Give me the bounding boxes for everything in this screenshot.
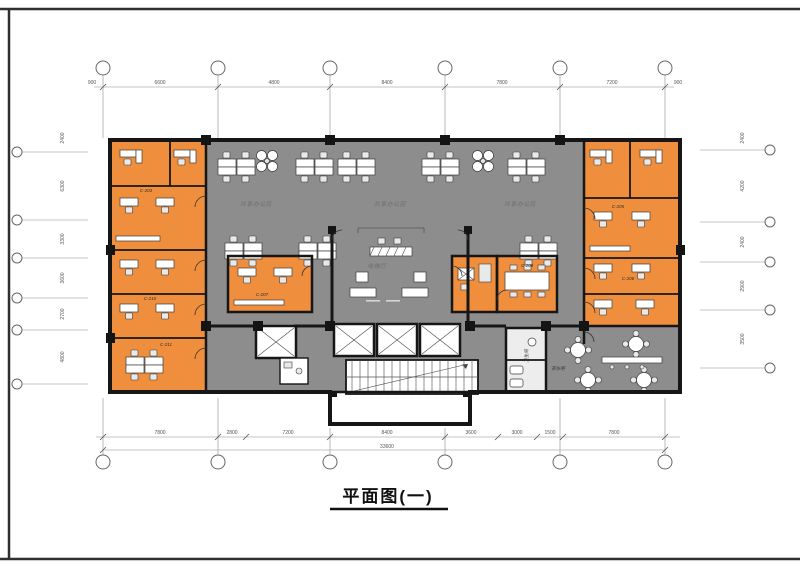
left-dimension-chain: 2400 6300 3300 3600 2700 4800 [12,132,88,389]
title-block: 平面图(一) [330,487,448,509]
dim-top-0: 900 [88,80,97,86]
dim-left-2: 3300 [60,233,66,244]
shared-office-label: 共享办公区 [374,200,407,208]
shared-office-label: 共享办公区 [240,200,273,208]
lobby-sofa [414,272,426,282]
stool [610,365,614,369]
room-code: C-211 [160,342,172,347]
elevator-hall-label: 电梯厅 [367,262,387,270]
room-code: C-206 [622,276,635,281]
room-code: C-210 [144,296,157,301]
lobby-sofa [402,288,428,297]
building: 卫生间 共享办公区 共享办公区 共享办公区 [106,135,685,424]
right-dimension-chain: 2400 4200 2400 2900 3500 [700,132,775,373]
dim-top-3: 8400 [381,80,392,86]
dim-top-5: 7200 [606,80,617,86]
site-plan-svg: 900 6600 4800 8400 7800 7200 900 7800 28… [0,0,800,566]
dim-left-4: 2700 [60,308,66,319]
core-wc-room [280,358,308,384]
room-code: C-208 [521,263,534,268]
right-office-wing-floor [584,142,678,326]
dim-bottom-3: 8400 [381,430,392,436]
pantry-label: 茶水吧 [551,366,566,371]
dim-right-0: 2400 [740,132,746,143]
dim-top-1: 6600 [154,80,165,86]
dim-right-4: 3500 [740,333,746,344]
dim-top-6: 900 [674,80,683,86]
dim-left-3: 3600 [60,272,66,283]
reception-chair [378,238,385,244]
elevator-shaft [334,324,374,356]
elevator-shaft [420,324,460,356]
floor-plan-drawing: 900 6600 4800 8400 7800 7200 900 7800 28… [0,0,800,566]
dim-bottom-6: 1500 [544,430,555,436]
dim-bottom-7: 7800 [608,430,619,436]
bottom-dimension-chain: 7800 2800 7200 8400 3600 3000 1500 7800 … [96,430,680,453]
room-code: C-203 [140,188,153,193]
dim-bottom-5: 3000 [511,430,522,436]
lower-annex-floor [330,392,470,424]
lobby-sofa [356,272,368,282]
room-code: C-207 [256,292,269,297]
dim-left-0: 2400 [60,132,66,143]
top-dimension-chain: 900 6600 4800 8400 7800 7200 900 [88,80,683,90]
elevator-shaft [377,324,417,356]
reception-chair [394,238,401,244]
dim-top-4: 7800 [496,80,507,86]
lobby-sofa [350,288,376,297]
stair-core [346,360,478,394]
dim-right-3: 2900 [740,280,746,291]
lobby-rug [366,300,380,302]
wc-label: 卫生间 [524,349,529,363]
dim-bottom-0: 7800 [154,430,165,436]
dim-left-5: 4800 [60,351,66,362]
reception-desk [370,247,412,256]
dim-top-2: 4800 [268,80,279,86]
drawing-title: 平面图(一) [342,487,433,506]
dim-right-2: 2400 [740,236,746,247]
cabinet [234,300,284,305]
stool [625,365,629,369]
dim-bottom-1: 2800 [226,430,237,436]
cabinet [116,236,160,241]
conference-table [505,272,549,290]
room-code: C-205 [612,204,625,209]
shared-office-label: 共享办公区 [504,200,537,208]
conference-room: C-208 [505,263,549,297]
stool [640,365,644,369]
dim-bottom-total: 33600 [380,444,394,450]
cabinet [590,246,630,251]
cafe-counter [602,357,662,363]
dim-bottom-4: 3600 [465,430,476,436]
dim-left-1: 6300 [60,180,66,191]
dim-bottom-2: 7200 [282,430,293,436]
lobby-rug [386,300,400,302]
dim-right-1: 4200 [740,180,746,191]
grid-column [96,61,110,469]
